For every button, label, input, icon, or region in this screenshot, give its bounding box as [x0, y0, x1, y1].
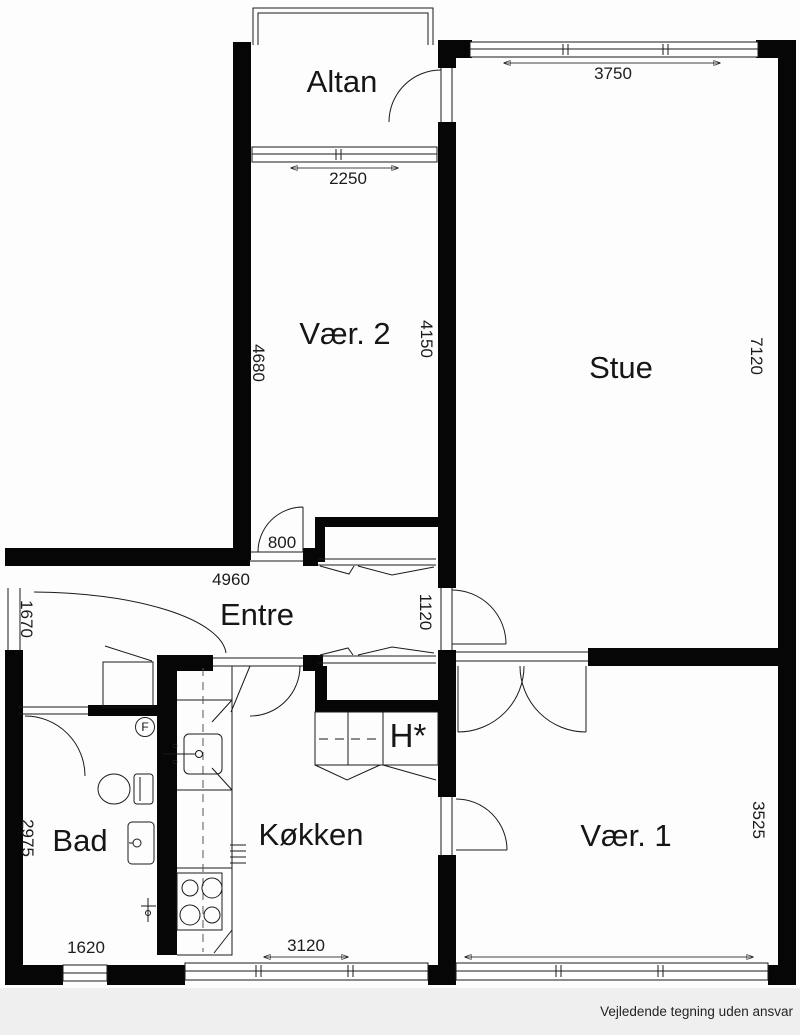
- room-label-stue: Stue: [589, 350, 653, 386]
- room-label-vaer2: Vær. 2: [299, 316, 390, 352]
- dim-koekken-window: 3120: [287, 936, 325, 956]
- floor-plan-page: Altan Vær. 2 Stue Entre Bad Køkken Vær. …: [0, 0, 800, 1035]
- room-label-vaer1: Vær. 1: [580, 818, 671, 854]
- toilet: [98, 774, 153, 804]
- window-bad-bottom: [63, 965, 107, 981]
- entry-door: [8, 588, 226, 653]
- floor-drain-symbol: F: [135, 717, 155, 737]
- bad-door: [18, 707, 88, 776]
- disclaimer-text: Vejledende tegning uden ansvar: [600, 1004, 793, 1019]
- window-vaer1-bottom: [456, 963, 768, 980]
- kitchen-sink: [163, 734, 222, 774]
- dim-bad-left: 2975: [17, 819, 37, 857]
- room-label-altan: Altan: [307, 64, 378, 100]
- dim-vaer1-right: 3525: [748, 801, 768, 839]
- radiator-valve: [141, 898, 156, 922]
- window-koekken-bottom: [185, 963, 428, 980]
- dim-bad-window: 1620: [67, 938, 105, 958]
- vaer1-side-door: [441, 797, 507, 855]
- dim-altan-window: 2250: [329, 169, 367, 189]
- stove: [177, 873, 222, 930]
- dim-stue-door: 1120: [415, 594, 435, 631]
- room-label-entre: Entre: [220, 597, 294, 633]
- vaer1-double-door: [456, 652, 588, 732]
- plan-linework: [0, 0, 800, 1035]
- dim-stue-window: 3750: [594, 64, 632, 84]
- dim-vaer2-right: 4150: [416, 320, 436, 358]
- closet-label: H*: [390, 717, 427, 755]
- entre-closet: [103, 646, 153, 707]
- window-vaer2-top: [252, 147, 437, 162]
- dim-entry-door: 1670: [16, 600, 36, 638]
- dim-entre-width: 4960: [212, 570, 250, 590]
- floor-drain-letter: F: [141, 720, 148, 734]
- koekken-door: [213, 658, 303, 716]
- altan-parapet: [253, 8, 433, 45]
- closet-front-lower: [318, 647, 436, 663]
- bathroom-sink: [128, 822, 154, 864]
- altan-door: [389, 68, 452, 122]
- closet-front-upper: [318, 559, 436, 575]
- dim-vaer2-left: 4680: [248, 344, 268, 382]
- window-stue-top: [470, 42, 758, 57]
- room-label-koekken: Køkken: [258, 817, 363, 853]
- dim-stue-right: 7120: [746, 337, 766, 375]
- dim-vaer2-door: 800: [268, 533, 296, 553]
- room-label-bad: Bad: [52, 823, 107, 859]
- stue-door: [441, 588, 506, 650]
